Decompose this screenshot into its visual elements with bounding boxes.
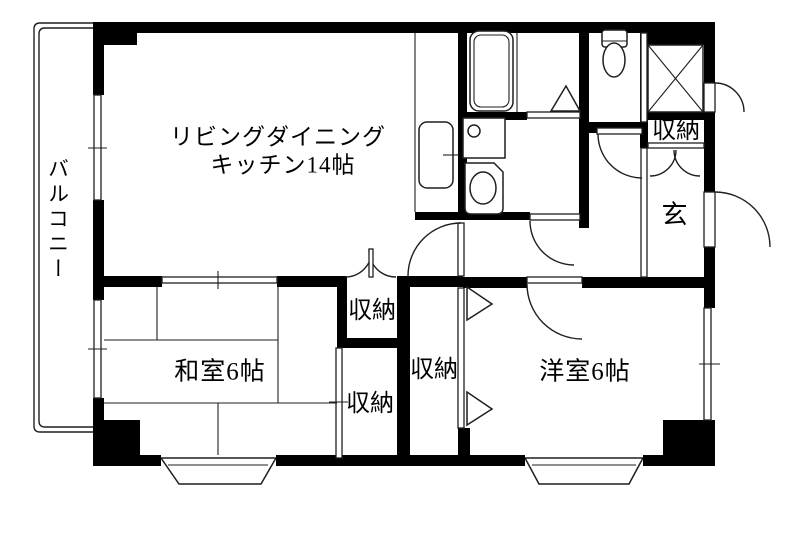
- door-washroom: [530, 214, 580, 265]
- washbasin: [463, 118, 505, 158]
- door-ldk-to-hall: [408, 223, 464, 276]
- double-door-ldk-closet: [345, 249, 396, 277]
- closet-label-ldk-side: 収納: [348, 298, 396, 324]
- washing-machine: [465, 163, 503, 214]
- sliding-door-ldk-japanese-room: [162, 271, 277, 289]
- storage-x-box: [648, 45, 703, 112]
- bifold-door-hall-closet: [458, 287, 492, 428]
- floor-plan: バルコニー リビングダイニング キッチン14帖 和室6帖 洋室6帖 収納 収納 …: [0, 0, 800, 547]
- closet-label-entrance-side: 収納: [652, 118, 700, 144]
- room-label-ldk-line2: キッチン14帖: [211, 152, 356, 177]
- bathroom-door: [527, 86, 580, 118]
- door-entrance: [704, 192, 770, 247]
- double-door-entrance-closet: [650, 150, 700, 176]
- bathtub: [470, 31, 517, 112]
- window-japanese-room-west: [88, 300, 107, 398]
- door-wc: [597, 128, 642, 178]
- toilet: [602, 30, 627, 77]
- window-western-room-east: [699, 308, 720, 420]
- door-western-room: [527, 277, 582, 339]
- bay-window-japanese-room: [161, 458, 276, 484]
- door-exterior-storage: [704, 83, 744, 112]
- room-label-japanese-room: 和室6帖: [174, 358, 266, 386]
- closet-label-japanese-side: 収納: [346, 391, 394, 417]
- inner-walls: [93, 33, 715, 458]
- room-label-balcony: バルコニー: [45, 158, 68, 283]
- room-label-entrance: 玄: [661, 202, 688, 231]
- bay-window-western-room: [525, 458, 643, 484]
- kitchen-counter: [415, 33, 459, 212]
- room-label-ldk-line1: リビングダイニング: [170, 124, 386, 149]
- window-ldk-west: [88, 95, 107, 200]
- closet-label-hall-side: 収納: [410, 357, 458, 383]
- room-label-western-room: 洋室6帖: [539, 358, 631, 386]
- floor-plan-drawing: [0, 0, 800, 547]
